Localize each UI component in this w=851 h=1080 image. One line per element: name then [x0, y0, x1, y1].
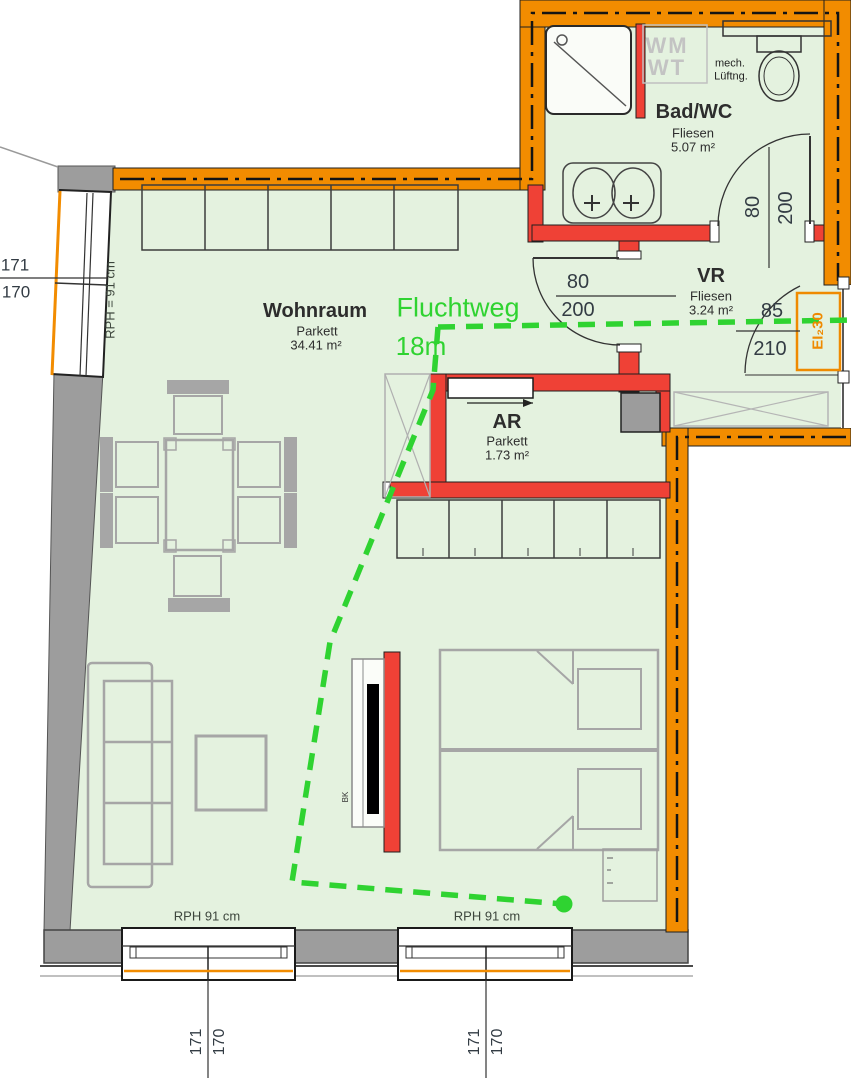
- parapet-south-window-2: RPH 91 cm: [454, 910, 520, 923]
- dim-west-window-w: 171: [1, 257, 29, 274]
- room-finish-ar: Parkett: [486, 435, 527, 448]
- dim-vr-door-h: 200: [561, 300, 594, 320]
- dim-bath-door-w: 80: [743, 196, 763, 218]
- dim-entry-door-w: 85: [761, 301, 783, 321]
- room-area-wohnraum: 34.41 m²: [290, 339, 341, 352]
- parapet-west-window: RPH = 91 cm: [104, 261, 117, 339]
- room-finish-wohnraum: Parkett: [296, 325, 337, 338]
- room-area-vr: 3.24 m²: [689, 304, 733, 317]
- dim-south-window-1-w: 171: [189, 1029, 205, 1056]
- tv-board-label: BK: [342, 792, 350, 803]
- parapet-south-window-1: RPH 91 cm: [174, 910, 240, 923]
- dim-bath-door-h: 200: [776, 191, 796, 224]
- service-shaft: [621, 393, 660, 432]
- floor-plan: Wohnraum Parkett 34.41 m² Bad/WC Fliesen…: [0, 0, 851, 1080]
- dim-vr-door-w: 80: [567, 272, 589, 292]
- tv-board: [352, 659, 384, 827]
- escape-route-length: 18m: [396, 333, 447, 359]
- dim-south-window-1-h: 170: [212, 1029, 228, 1056]
- room-finish-badwc: Fliesen: [672, 127, 714, 140]
- balcony-edge-line: [0, 147, 58, 167]
- room-label-badwc: Bad/WC: [656, 102, 733, 122]
- south-window-2: [398, 928, 572, 980]
- room-area-ar: 1.73 m²: [485, 449, 529, 462]
- room-label-ar: AR: [493, 412, 522, 432]
- vent-label-line1: mech.: [715, 59, 745, 70]
- dryer-label: WT: [648, 57, 686, 79]
- floor-plan-drawing: [0, 0, 851, 1080]
- dim-entry-door-h: 210: [753, 339, 786, 359]
- fire-door-rating: EI₂30: [811, 312, 826, 350]
- south-window-1: [122, 928, 295, 980]
- room-label-wohnraum: Wohnraum: [263, 301, 367, 321]
- dim-west-window-h: 170: [2, 284, 30, 301]
- room-label-vr: VR: [697, 266, 725, 286]
- room-area-badwc: 5.07 m²: [671, 141, 715, 154]
- vent-label-line2: Lüftng.: [714, 72, 748, 83]
- shower: [546, 26, 631, 114]
- washer-label: WM: [645, 35, 688, 57]
- escape-route-endpoint: [556, 896, 573, 913]
- tv-screen: [367, 684, 379, 814]
- apartment-floor: [70, 27, 842, 930]
- dim-south-window-2-w: 171: [467, 1029, 483, 1056]
- room-finish-vr: Fliesen: [690, 290, 732, 303]
- escape-route-label: Fluchtweg: [396, 295, 519, 322]
- dim-south-window-2-h: 170: [490, 1029, 506, 1056]
